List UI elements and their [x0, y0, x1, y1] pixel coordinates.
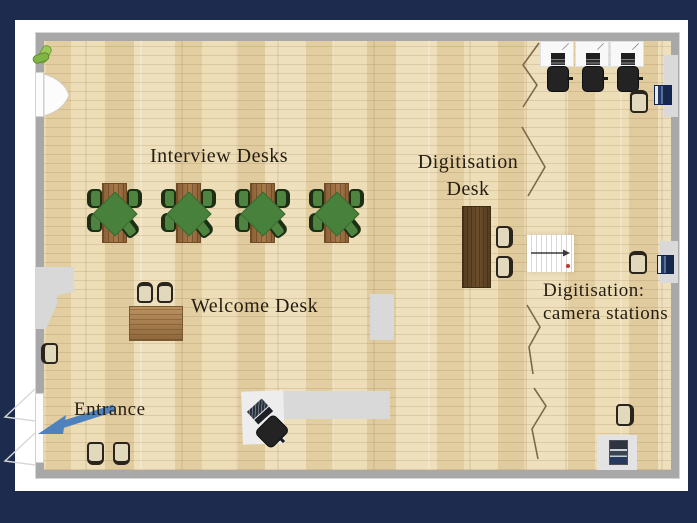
welcome-desk-label: Welcome Desk: [191, 295, 318, 318]
entrance-label: Entrance: [74, 399, 146, 421]
welcome-chair: [157, 282, 173, 303]
camera-station-desk: [575, 41, 609, 67]
stairs-start-dot: [566, 264, 570, 268]
guest-chair: [41, 343, 58, 364]
room-floor: Interview Desks: [44, 41, 671, 470]
pencil-mark-icon: [632, 43, 639, 50]
door-swing-icon: [44, 72, 74, 118]
stairs-icon: [527, 235, 574, 272]
digitisation-desk-label: Digitisation Desk: [406, 149, 530, 203]
office-chair: [617, 66, 639, 92]
welcome-desk: [130, 307, 182, 340]
door-panel-top-left: [35, 72, 44, 117]
camera-station-desk: [610, 41, 644, 67]
digitisation-desk-label-line1: Digitisation: [418, 151, 518, 173]
office-chair: [547, 66, 569, 92]
digitisation-chair: [496, 226, 513, 248]
camera-station-desk: [540, 41, 574, 67]
long-table: [284, 391, 390, 419]
office-chair: [582, 66, 604, 92]
pencil-mark-icon: [597, 43, 604, 50]
camera-stations-label-line1: Digitisation:: [543, 280, 645, 301]
interview-table: [251, 184, 274, 242]
welcome-chair: [137, 282, 153, 303]
slide-background: Interview Desks: [0, 0, 697, 523]
wall-appliance-icon: [657, 255, 674, 274]
floorplan-canvas: Interview Desks: [15, 20, 688, 491]
guest-chair: [616, 404, 634, 426]
room-walls: Interview Desks: [36, 33, 679, 478]
digitisation-desk: [463, 207, 490, 287]
camera-device-icon: [551, 53, 565, 65]
interview-desks-label: Interview Desks: [150, 145, 288, 168]
printer-icon: [609, 440, 628, 465]
wall-appliance-icon: [654, 85, 672, 105]
mat: [370, 294, 394, 340]
interview-table: [103, 184, 126, 242]
camera-stations-label: Digitisation: camera stations: [543, 279, 673, 325]
pencil-mark-icon: [562, 43, 569, 50]
digitisation-desk-label-line2: Desk: [446, 178, 489, 200]
wall-alcove: [36, 267, 74, 329]
interview-table: [325, 184, 348, 242]
interview-table: [177, 184, 200, 242]
digitisation-chair: [496, 256, 513, 278]
camera-device-icon: [586, 53, 600, 65]
waiting-chair: [113, 442, 130, 465]
camera-stations-label-line2: camera stations: [543, 303, 668, 324]
waiting-chair: [87, 442, 104, 465]
guest-chair: [630, 90, 648, 113]
camera-device-icon: [621, 53, 635, 65]
guest-chair: [629, 251, 647, 274]
plant-icon: [32, 42, 56, 72]
